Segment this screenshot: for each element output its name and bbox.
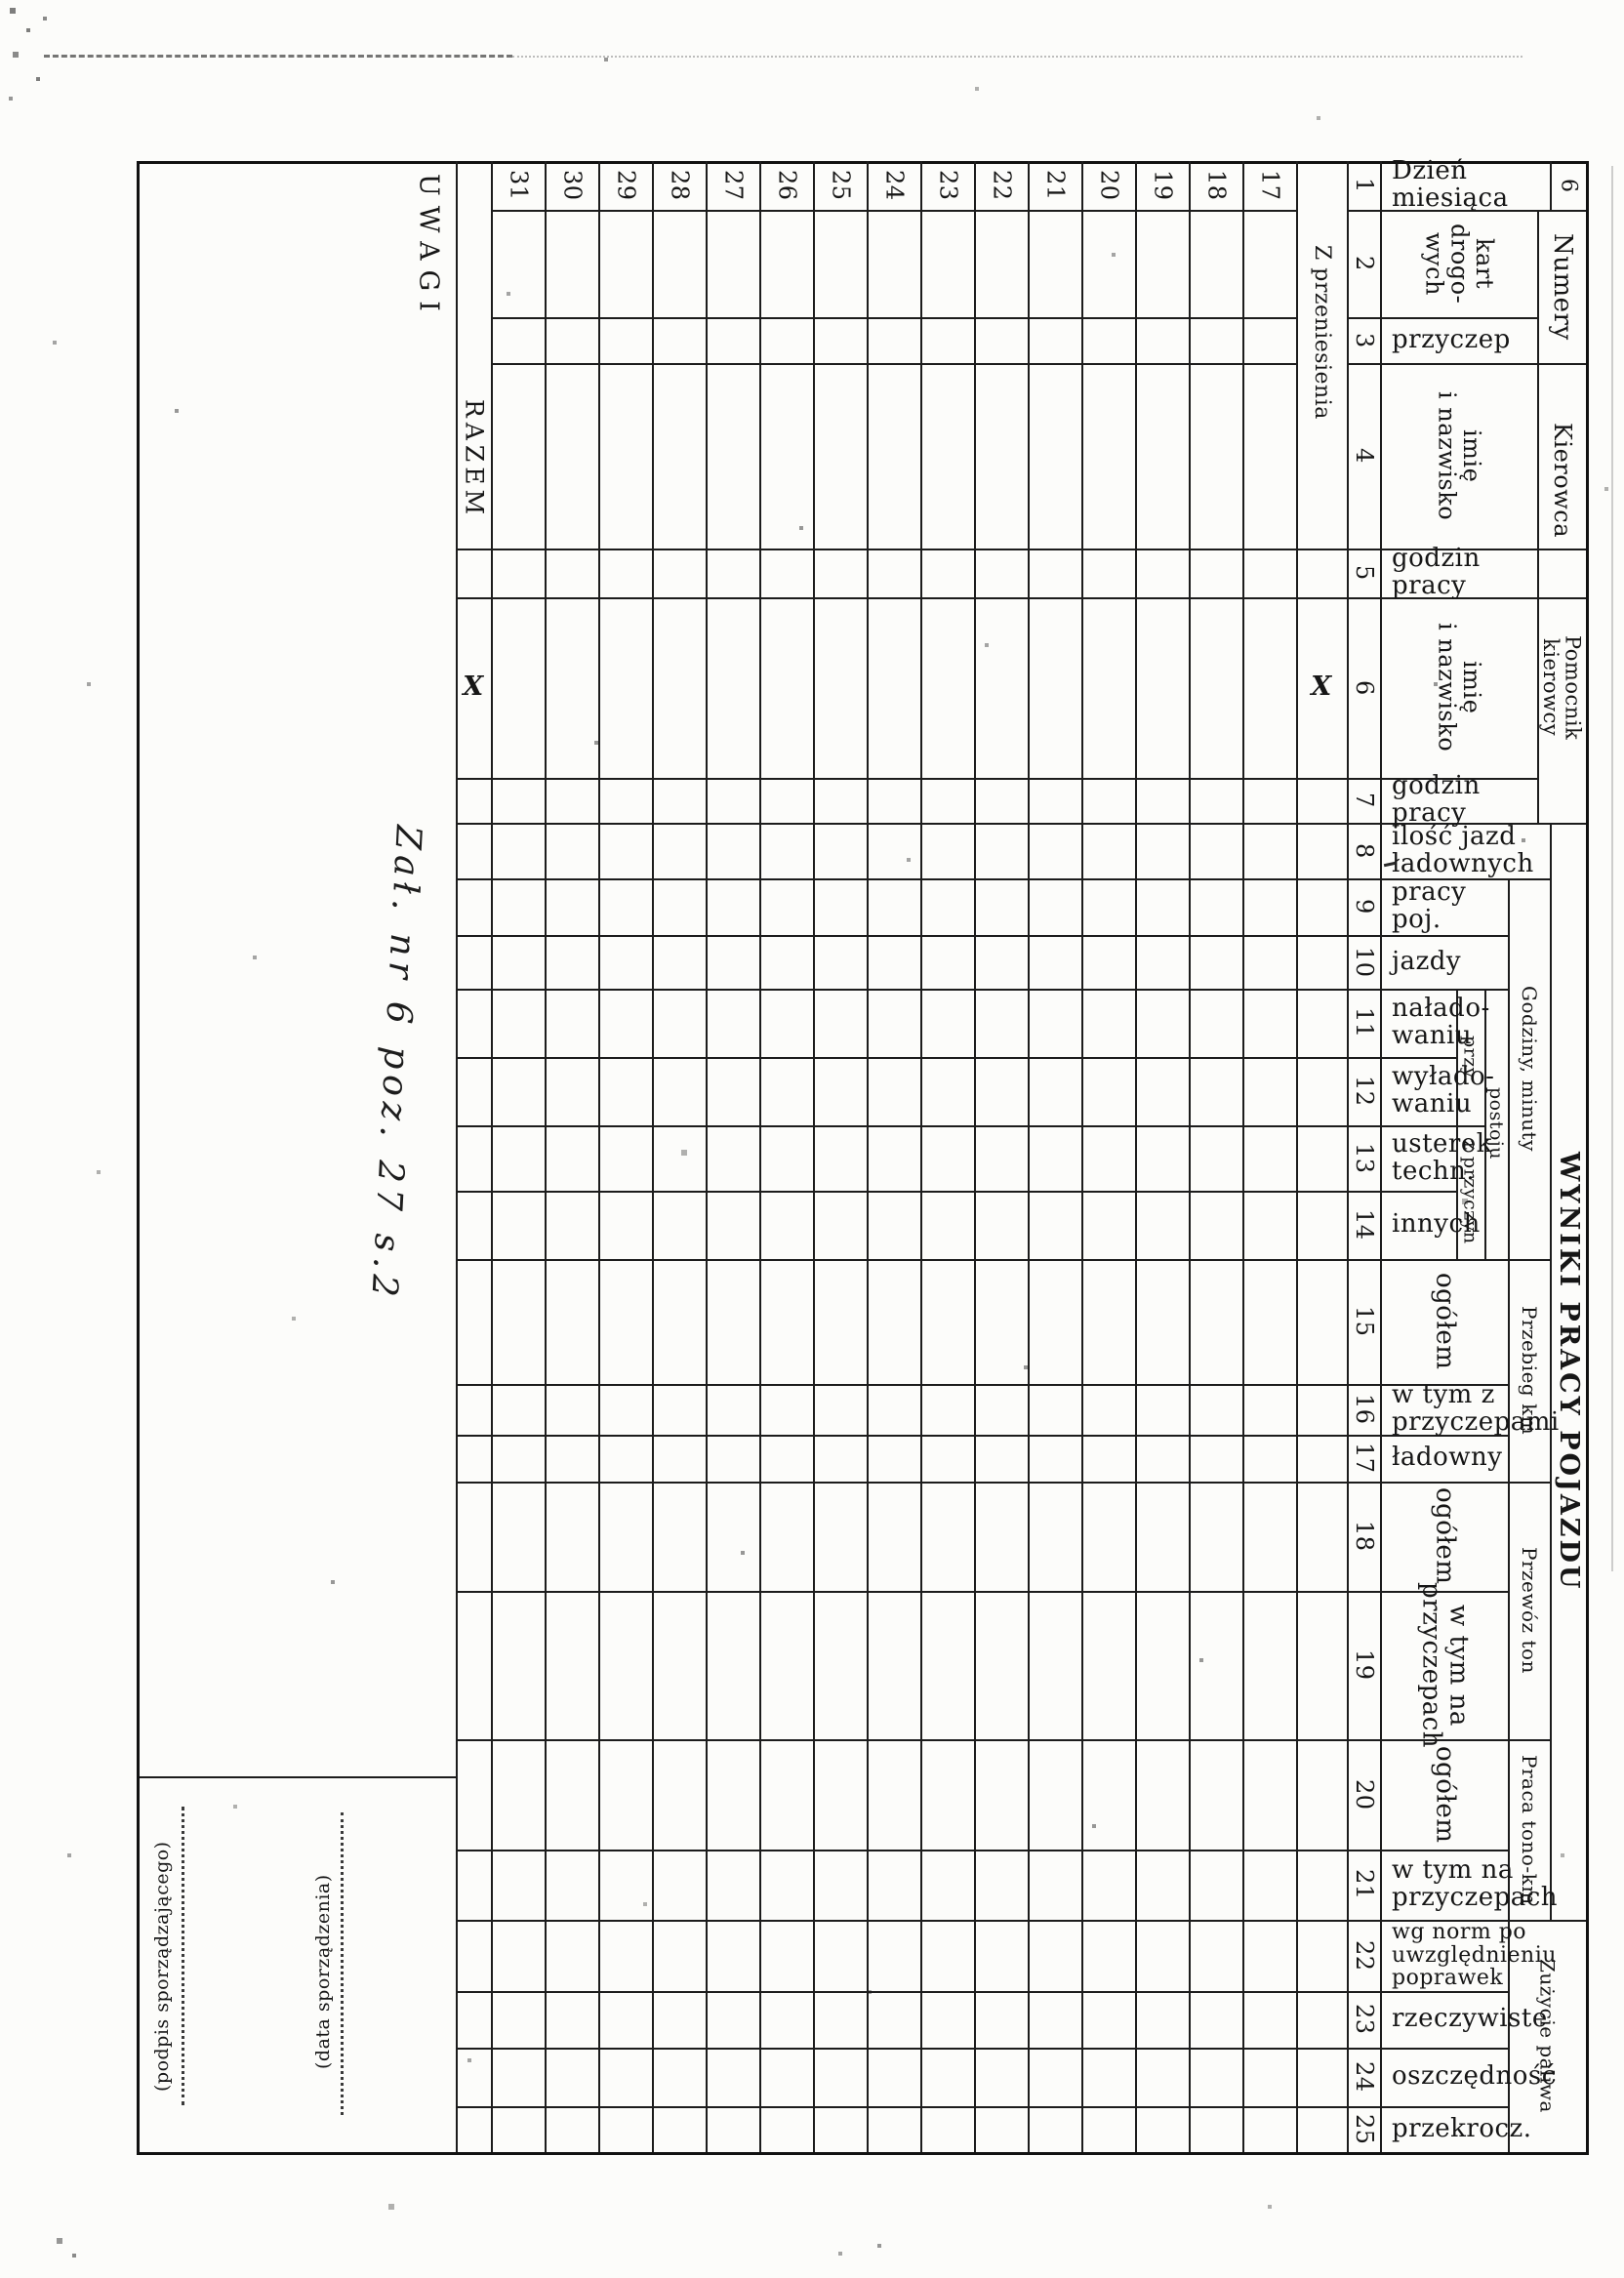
- handwritten-note: Zał. nr 6 poz. 27 s.2: [345, 824, 441, 1373]
- row-label-wg-norm: wg norm po uwzględnieniu poprawek: [1380, 1920, 1520, 1991]
- group-label-numery: Numery: [1537, 210, 1586, 363]
- paper-edge-shadow: [1611, 166, 1613, 1571]
- row-number-20: 20: [1347, 1739, 1380, 1850]
- group-label-godziny-minuty: Godziny, minuty: [1508, 878, 1550, 1259]
- row-number-4: 4: [1347, 363, 1380, 549]
- table-right-border: [1586, 161, 1589, 2155]
- row-number-2: 2: [1347, 210, 1380, 317]
- grid-line: [456, 1057, 1456, 1059]
- grid-line: [706, 161, 708, 2152]
- z-przeniesienia-column-label: Z przeniesienia: [1296, 210, 1347, 454]
- row-label-pracy-poj: pracy poj.: [1380, 878, 1520, 935]
- row-number-19: 19: [1347, 1591, 1380, 1739]
- scan-speckle-noise: [0, 0, 2, 2]
- row-number-17: 17: [1347, 1435, 1380, 1482]
- row-label-godzin-pracy-pomocnik: godzin pracy: [1380, 778, 1549, 823]
- grid-line: [1296, 161, 1298, 2152]
- group-label-pomocnik-kierowcy: Pomocnik kierowcy: [1537, 597, 1586, 778]
- row-label-dzien-miesiaca: Dzień miesiąca: [1380, 161, 1562, 210]
- scan-scratch-line-faint: [512, 56, 1522, 58]
- day-number: 30: [545, 161, 598, 210]
- row-label-ladowny: ładowny: [1380, 1435, 1520, 1482]
- razem-x-mark: X: [456, 597, 491, 778]
- group-label-przebieg-km: Przebieg km: [1508, 1259, 1550, 1482]
- razem-column-label: RAZEM: [456, 371, 491, 549]
- table-bottom-border: [137, 2152, 1589, 2155]
- signature-dotted-line-podpis: [182, 1807, 184, 2105]
- scan-scratch-line: [44, 55, 512, 58]
- row-number-10: 10: [1347, 935, 1380, 989]
- row-label-w-tym-na-przyczepach-praca: w tym na przyczepach: [1380, 1850, 1520, 1920]
- grid-line: [598, 161, 600, 2152]
- grid-line: [1242, 161, 1244, 2152]
- row-label-rzeczywiste: rzeczywiste: [1380, 1991, 1520, 2048]
- group-label-przy: przy: [1456, 989, 1484, 1125]
- row-number-3: 3: [1347, 317, 1380, 363]
- row-number-8: 8: [1347, 823, 1380, 878]
- group-label-praca-tono-km: Praca tono-km: [1508, 1739, 1550, 1920]
- grid-line: [813, 161, 815, 2152]
- grid-line: [759, 161, 761, 2152]
- grid-line: [456, 1191, 1456, 1193]
- z-przeniesienia-x-mark: X: [1296, 597, 1347, 778]
- day-number: 19: [1135, 161, 1189, 210]
- row-label-w-tym-na-przyczepach-przewoz: w tym na przyczepach: [1380, 1591, 1508, 1739]
- day-number: 25: [813, 161, 867, 210]
- day-number: 22: [974, 161, 1028, 210]
- row-label-kart-drogowych: kart drogo- wych: [1380, 210, 1537, 317]
- row-label-ilosc-jazd-ladownych: ilość jazd ładownych: [1380, 823, 1562, 878]
- row-number-11: 11: [1347, 989, 1380, 1057]
- row-label-imie-nazwisko-pomocnik: imię i nazwisko: [1380, 597, 1537, 778]
- grid-line: [491, 363, 1296, 365]
- grid-line: [1135, 161, 1137, 2152]
- day-number: 27: [706, 161, 759, 210]
- row-label-naladowaniu: nałado- waniu: [1380, 989, 1468, 1057]
- row-label-wyladowaniu: wyłado- waniu: [1380, 1057, 1468, 1125]
- day-number: 20: [1081, 161, 1135, 210]
- row-number-25: 25: [1347, 2106, 1380, 2152]
- scanned-form-page: 31 30 29 28 27 26 25 24 23 22 21 20 19 1…: [0, 0, 1624, 2278]
- row-label-oszczednosc: oszczędność: [1380, 2048, 1520, 2106]
- group-label-przewoz-ton: Przewóz ton: [1508, 1482, 1550, 1739]
- page-number: 6: [1557, 179, 1580, 193]
- row-number-7: 7: [1347, 778, 1380, 823]
- group-label-z-przyczyn: z przyczyn: [1456, 1125, 1484, 1259]
- row-number-16: 16: [1347, 1384, 1380, 1435]
- row-number-5: 5: [1347, 549, 1380, 597]
- day-number: 23: [920, 161, 974, 210]
- signature-label-podpis: (podpis sporządzającego): [144, 1835, 180, 2098]
- row-number-22: 22: [1347, 1920, 1380, 1991]
- row-label-ogolem-przewoz: ogółem: [1380, 1482, 1508, 1591]
- group-label-wyniki-pracy-pojazdu: WYNIKI PRACY POJAZDU: [1550, 823, 1586, 1920]
- grid-line: [491, 210, 1296, 212]
- row-label-usterek-techn: usterek techn.: [1380, 1125, 1468, 1191]
- row-label-jazdy: jazdy: [1380, 935, 1520, 989]
- grid-line: [1081, 161, 1083, 2152]
- group-label-postoju: postoju: [1484, 989, 1508, 1259]
- row-label-w-tym-z-przyczepami: w tym z przyczepami: [1380, 1384, 1520, 1435]
- row-label-godzin-pracy-kierowca: godzin pracy: [1380, 549, 1549, 597]
- grid-line: [1189, 161, 1191, 2152]
- row-number-6: 6: [1347, 597, 1380, 778]
- grid-line: [491, 317, 1296, 319]
- signature-dotted-line-data: [341, 1812, 344, 2115]
- day-number: 18: [1189, 161, 1242, 210]
- day-number: 21: [1028, 161, 1081, 210]
- row-label-ogolem-przebieg: ogółem: [1380, 1259, 1508, 1384]
- row-number-24: 24: [1347, 2048, 1380, 2106]
- day-number: 26: [759, 161, 813, 210]
- grid-line: [974, 161, 976, 2152]
- row-number-13: 13: [1347, 1125, 1380, 1191]
- row-number-1: 1: [1347, 161, 1380, 210]
- row-number-12: 12: [1347, 1057, 1380, 1125]
- signature-label-data: (data sporządzenia): [305, 1859, 341, 2084]
- grid-line: [652, 161, 654, 2152]
- uwagi-column-label: UWAGI: [408, 174, 447, 335]
- day-number: 28: [652, 161, 706, 210]
- row-label-imie-nazwisko-kierowca: imię i nazwisko: [1380, 363, 1537, 549]
- grid-line: [456, 1125, 1484, 1127]
- grid-line: [1028, 161, 1030, 2152]
- row-label-przekrocz: przekrocz.: [1380, 2106, 1520, 2152]
- grid-line: [920, 161, 922, 2152]
- row-number-18: 18: [1347, 1482, 1380, 1591]
- group-label-zuzycie-paliwa: Zużycie paliwa: [1508, 1920, 1586, 2152]
- row-label-przyczep: przyczep: [1380, 317, 1549, 363]
- row-number-21: 21: [1347, 1850, 1380, 1920]
- row-number-23: 23: [1347, 1991, 1380, 2048]
- group-label-kierowca: Kierowca: [1537, 363, 1586, 597]
- row-number-14: 14: [1347, 1191, 1380, 1259]
- row-label-innych: innych: [1380, 1191, 1468, 1259]
- row-number-9: 9: [1347, 878, 1380, 935]
- day-number: 29: [598, 161, 652, 210]
- day-number: 31: [491, 161, 545, 210]
- day-number: 24: [867, 161, 920, 210]
- grid-line: [867, 161, 869, 2152]
- grid-line: [545, 161, 547, 2152]
- table-left-border: [137, 161, 140, 2155]
- row-label-ogolem-praca: ogółem: [1380, 1739, 1508, 1850]
- day-number: 17: [1242, 161, 1296, 210]
- signature-box-top-line: [137, 1776, 456, 1778]
- grid-line: [491, 161, 493, 2152]
- row-number-15: 15: [1347, 1259, 1380, 1384]
